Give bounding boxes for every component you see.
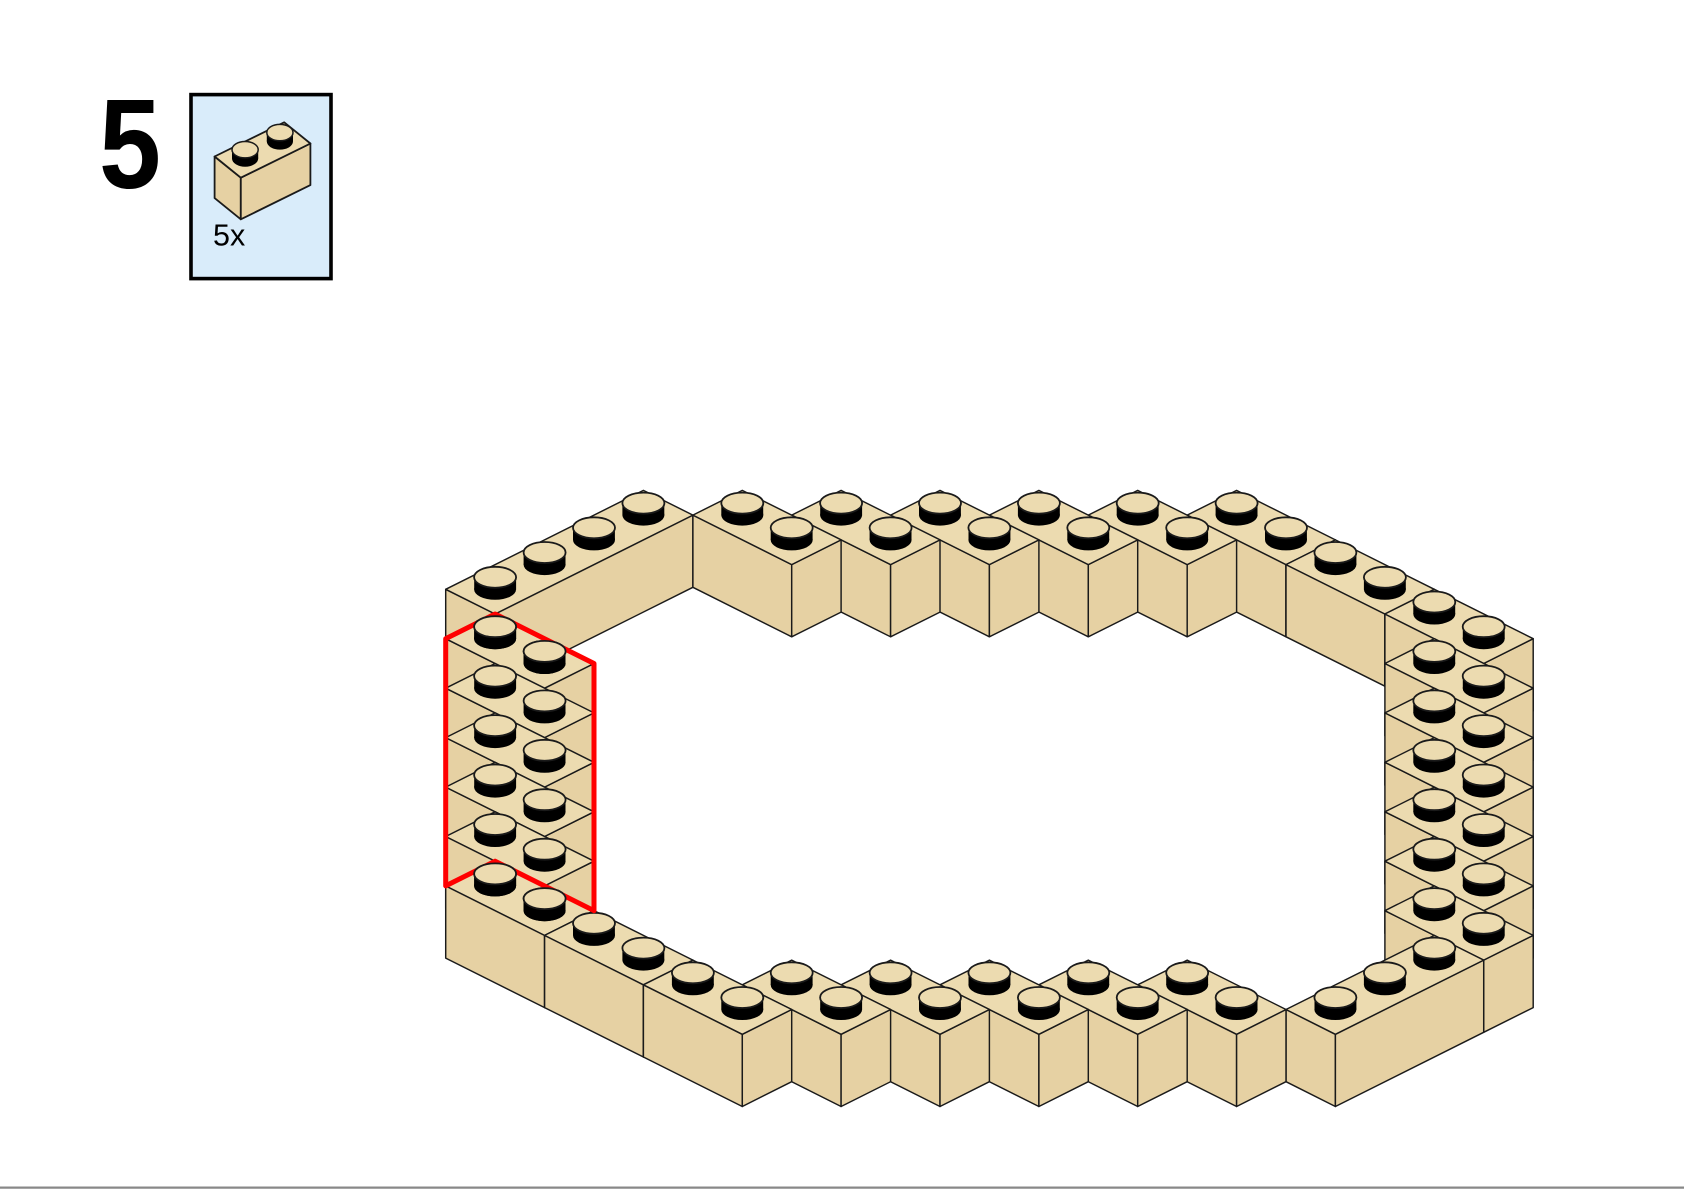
- svg-text:5x: 5x: [213, 219, 245, 253]
- svg-text:5: 5: [99, 74, 161, 216]
